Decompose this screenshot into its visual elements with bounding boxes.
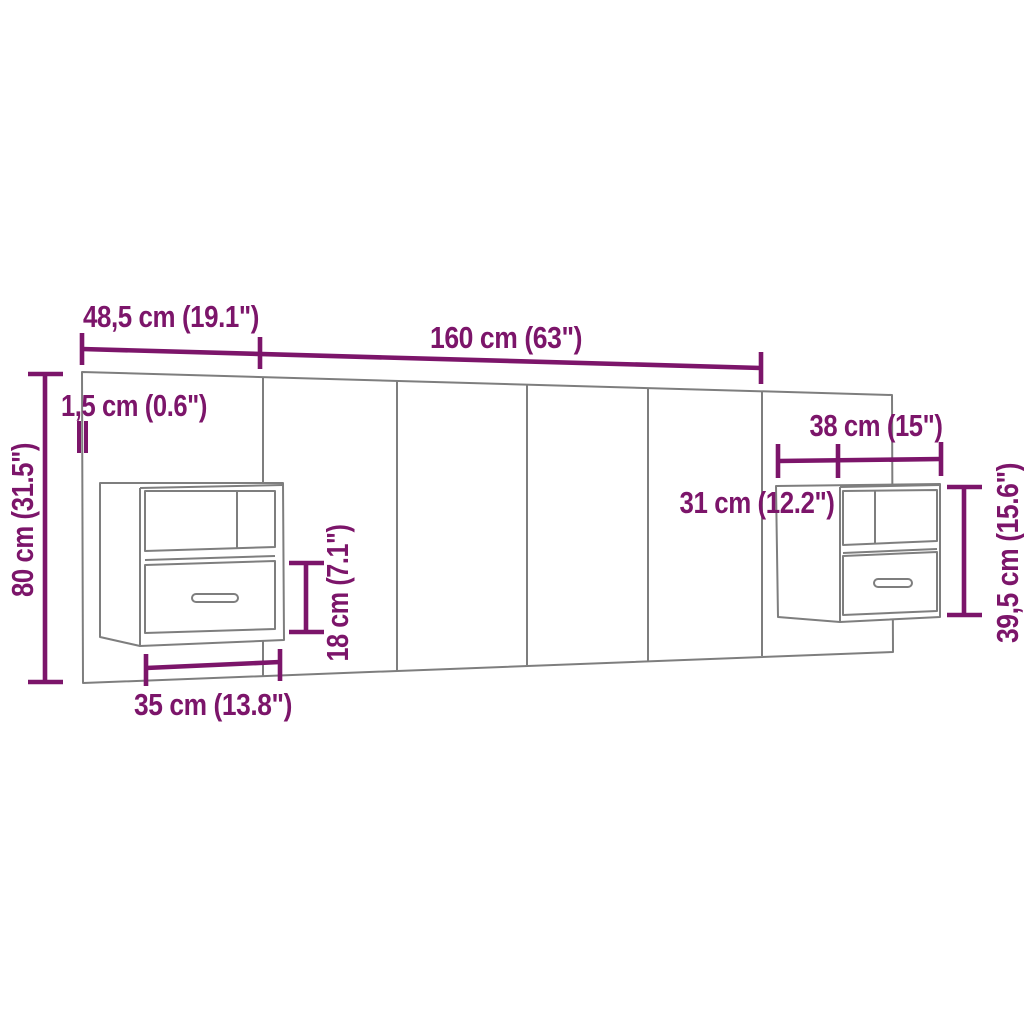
product-dimension-diagram: 48,5 cm (19.1") 160 cm (63") 1,5 cm (0.6… xyxy=(0,0,1024,1024)
label-panel-thickness: 1,5 cm (0.6") xyxy=(61,388,207,423)
label-right-cabinet-width: 38 cm (15") xyxy=(810,408,943,443)
label-main-panel-width: 160 cm (63") xyxy=(430,320,582,355)
label-right-cabinet-height: 39,5 cm (15.6") xyxy=(990,463,1024,643)
dimension-right-cabinet-height xyxy=(947,487,982,615)
label-left-cabinet-width: 35 cm (13.8") xyxy=(134,687,292,722)
left-cabinet-drawing xyxy=(100,483,284,646)
diagram-canvas: 48,5 cm (19.1") 160 cm (63") 1,5 cm (0.6… xyxy=(0,0,1024,1024)
dimension-top-widths xyxy=(82,333,761,384)
dimension-right-cabinet-width xyxy=(778,442,941,478)
label-right-cabinet-depth: 31 cm (12.2") xyxy=(680,485,835,520)
label-ext-panel-width: 48,5 cm (19.1") xyxy=(83,299,259,334)
dimension-left-drawer-height xyxy=(289,563,324,632)
label-panel-height: 80 cm (31.5") xyxy=(5,443,40,597)
label-left-drawer-height: 18 cm (7.1") xyxy=(320,525,355,662)
